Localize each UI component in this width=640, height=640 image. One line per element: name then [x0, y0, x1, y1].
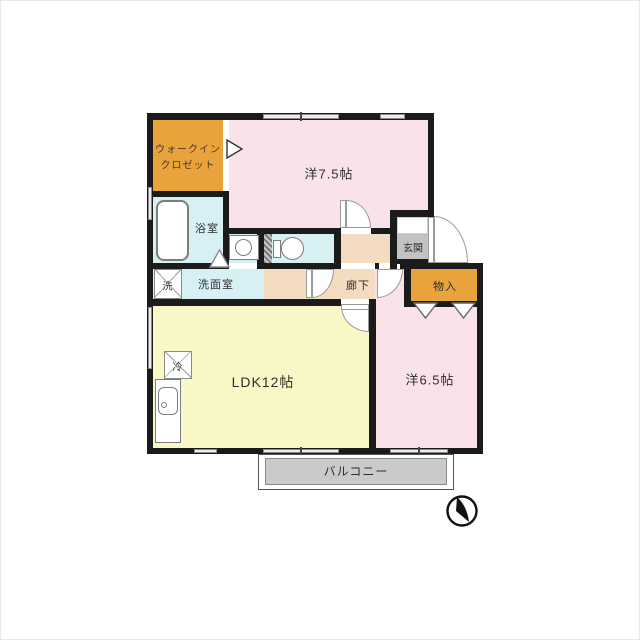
wall-right-lower — [477, 263, 483, 454]
closet-opening-arrow-icon — [226, 139, 244, 159]
washbasin-bowl — [235, 239, 252, 256]
western-room-7-5-label: 洋7.5帖 — [304, 164, 353, 183]
wall-ldk-bed2 — [369, 299, 376, 448]
bathtub — [156, 200, 189, 261]
wall-bed1-bottom-a — [229, 228, 341, 234]
corridor-upper — [341, 234, 390, 263]
window-sash-tick — [418, 447, 420, 455]
window-bottom-small — [194, 449, 217, 453]
door-leaf-ldk — [341, 304, 369, 310]
wall-storage-top — [404, 263, 483, 269]
window-ldk-left — [148, 307, 152, 369]
corridor-label: 廊下 — [346, 277, 370, 293]
room-walk-in-closet — [153, 120, 223, 191]
storage-folding-door-symbol — [413, 302, 438, 320]
door-leaf-washroom — [306, 269, 312, 298]
wall-washroom-bottom — [153, 299, 341, 306]
window-sash-tick — [300, 112, 302, 121]
wall-right-upper — [428, 113, 434, 217]
kitchen-sink — [158, 387, 178, 415]
bathroom-label: 浴室 — [195, 220, 219, 236]
window-top-small — [380, 114, 405, 119]
ldk-label: LDK12帖 — [232, 372, 295, 392]
entrance-label: 玄関 — [403, 240, 423, 255]
balcony-label: バルコニー — [324, 463, 389, 480]
entrance-step — [397, 217, 428, 234]
wall-entrance-left — [390, 210, 397, 269]
fridge-label: 冷 — [173, 359, 184, 374]
washroom-label: 洗面室 — [198, 276, 234, 292]
walk-in-closet-label-line1: ウォークイン — [155, 141, 221, 156]
storage-label: 物入 — [433, 278, 457, 294]
toilet-tank — [273, 240, 281, 258]
door-leaf-bed1 — [340, 200, 346, 228]
toilet-door — [264, 234, 272, 263]
wall-left — [147, 113, 153, 454]
wall-closet-bottom — [153, 191, 229, 197]
toilet-bowl-icon — [281, 237, 304, 260]
walk-in-closet-label-line2: クロゼット — [161, 157, 216, 172]
door-leaf-entrance — [428, 217, 434, 263]
bathroom-door-symbol — [209, 249, 230, 268]
compass-icon — [444, 493, 480, 529]
window-bathroom — [148, 187, 152, 220]
wall-bed1-bottom-b — [371, 228, 397, 234]
kitchen-faucet-dot — [161, 402, 167, 408]
door-arc-entrance — [434, 216, 468, 263]
window-sash-tick — [300, 447, 302, 455]
storage-folding-door-symbol — [451, 302, 476, 320]
western-room-6-5-label: 洋6.5帖 — [405, 370, 454, 389]
floor-plan: ウォークイン クロゼット 洋7.5帖 浴室 洗面室 洗 廊下 玄関 物入 LDK… — [0, 0, 640, 640]
washer-label: 洗 — [163, 278, 174, 293]
